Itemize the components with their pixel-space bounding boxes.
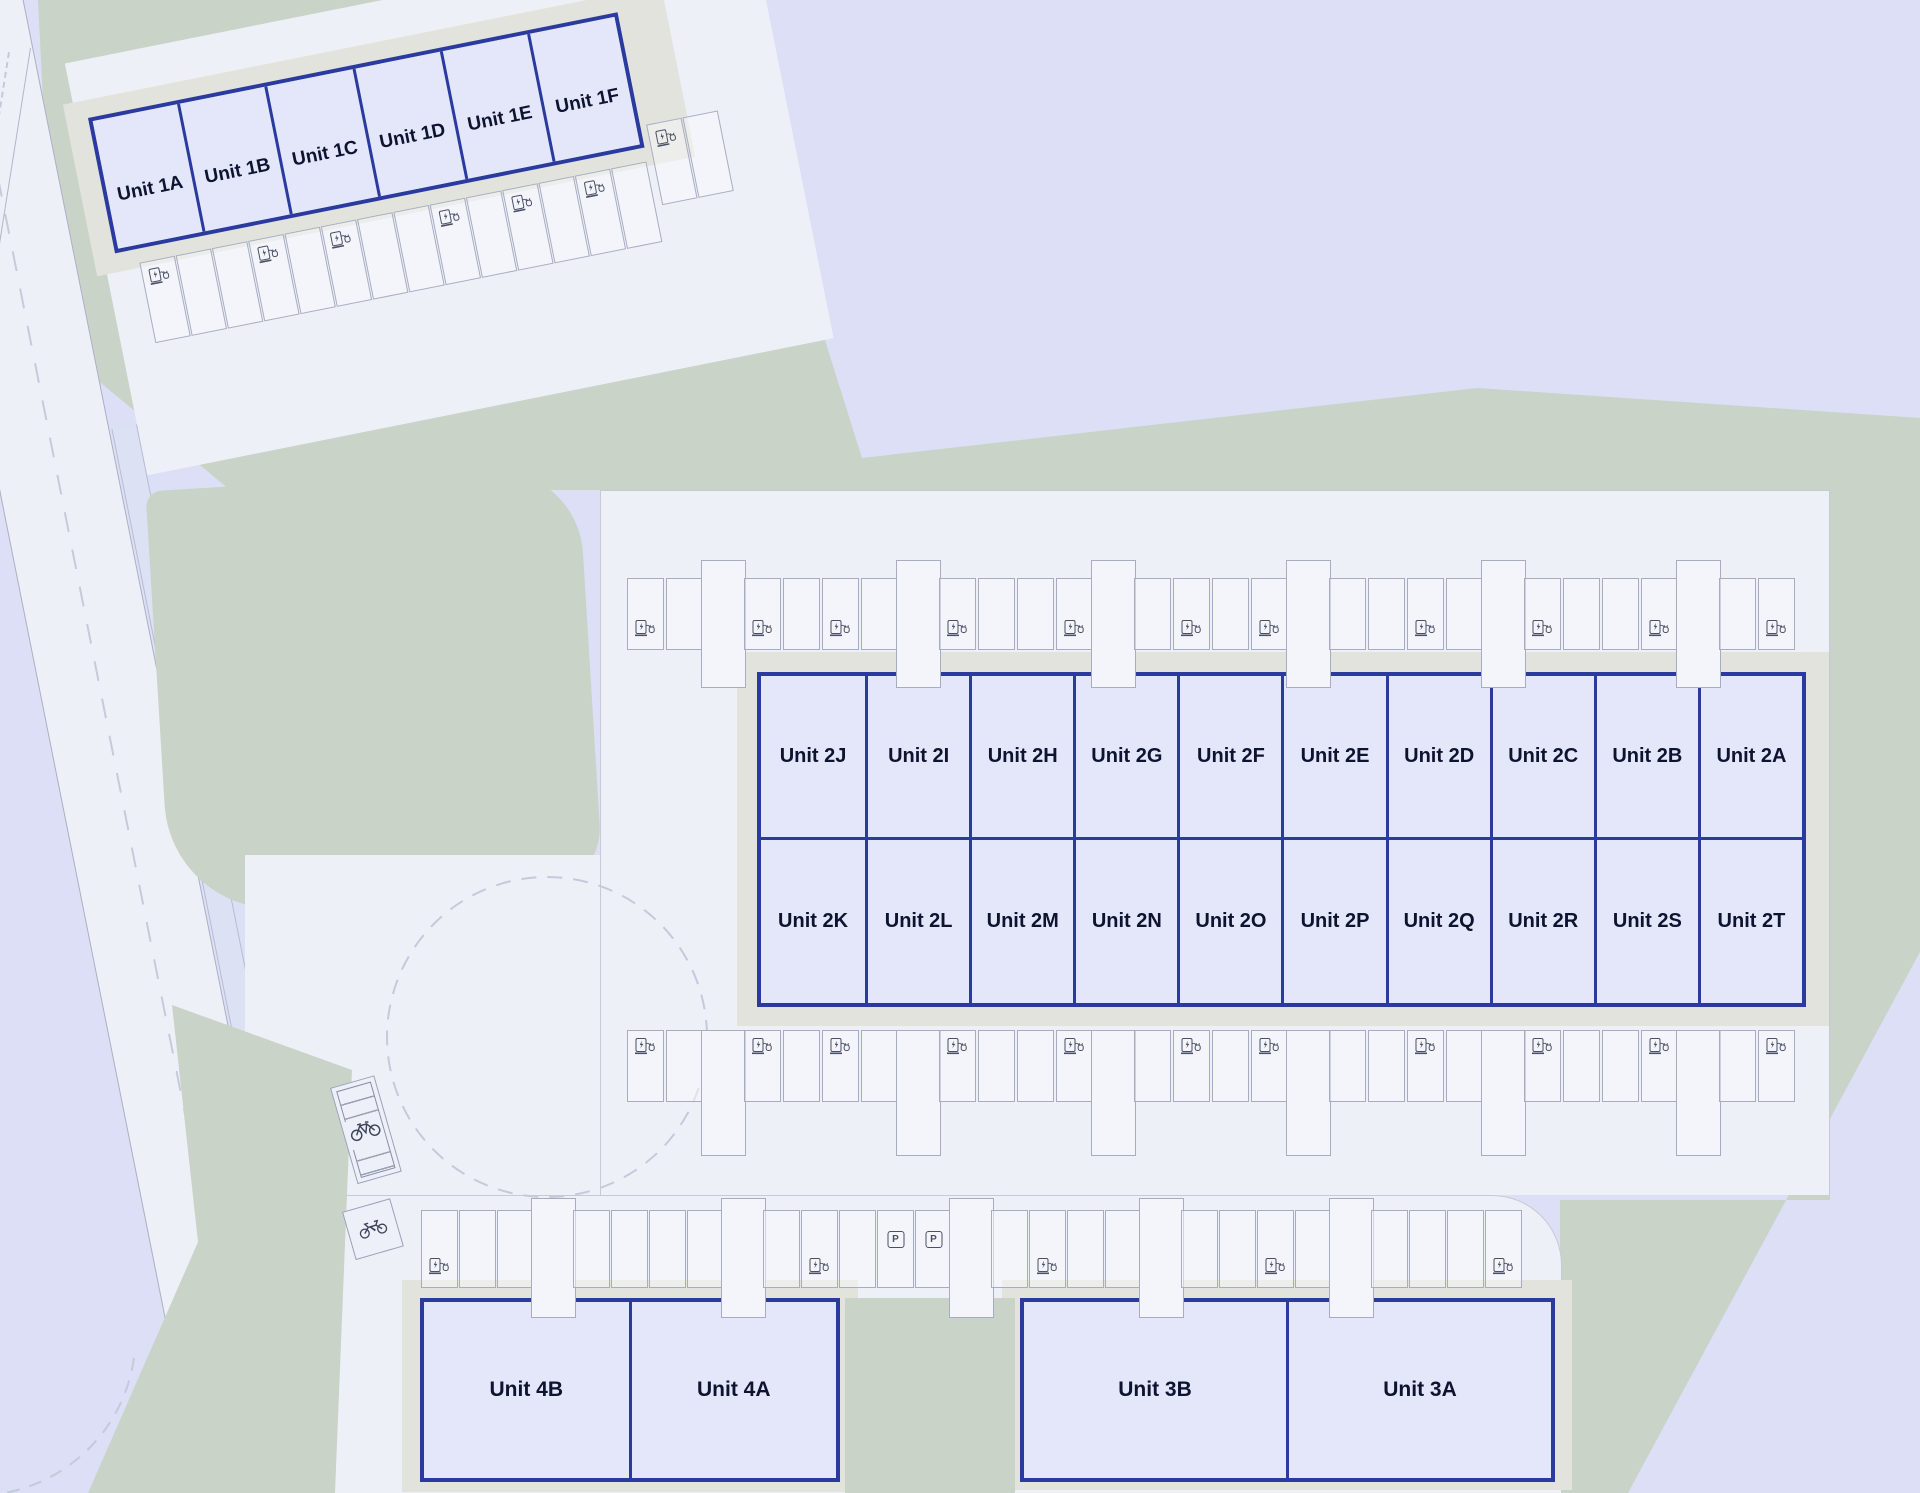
ev-charging-icon <box>829 1037 853 1061</box>
ev-charging-icon <box>1765 619 1789 643</box>
ev-charging-icon <box>808 1257 832 1281</box>
unit-label: Unit 4B <box>490 1378 564 1402</box>
motorcycle-icon <box>355 1213 389 1240</box>
ev-charging-icon <box>634 619 658 643</box>
ev-charging-station-icon <box>1180 1037 1204 1056</box>
ev-charging-station-icon <box>1414 1037 1438 1056</box>
building-block2: Unit 2JUnit 2IUnit 2HUnit 2GUnit 2FUnit … <box>757 672 1806 1007</box>
ev-charging-station-icon <box>1063 619 1087 638</box>
parking-stall <box>1409 1210 1446 1288</box>
parking-stall <box>822 578 859 650</box>
ev-charging-station-icon <box>328 227 355 250</box>
parking-stall-wide <box>1091 1030 1136 1156</box>
unit-label: Unit 2I <box>888 745 949 768</box>
building-block4: Unit 4B Unit 4A <box>420 1298 840 1482</box>
ev-charging-station-icon <box>829 619 853 638</box>
ev-charging-icon <box>1063 1037 1087 1061</box>
grass-central-verge <box>145 465 603 915</box>
ev-charging-station-icon <box>437 206 464 229</box>
parking-stall-wide <box>1676 1030 1721 1156</box>
parking-stall <box>1067 1210 1104 1288</box>
unit-2j: Unit 2J <box>761 676 865 840</box>
parking-stall <box>666 578 703 650</box>
parking-stall <box>421 1210 458 1288</box>
unit-label: Unit 2J <box>780 745 847 768</box>
ev-charging-icon <box>1531 619 1555 643</box>
ev-charging-icon <box>1765 1037 1789 1061</box>
parking-stall <box>1719 578 1756 650</box>
unit-label: Unit 1C <box>290 137 360 172</box>
parking-stall <box>627 578 664 650</box>
ev-charging-station-icon <box>808 1257 832 1276</box>
parking-p-icon: P <box>887 1231 904 1248</box>
unit-2f: Unit 2F <box>1177 676 1281 840</box>
ev-charging-icon <box>751 619 775 643</box>
parking-stall <box>1447 1210 1484 1288</box>
unit-label: Unit 2S <box>1613 910 1682 933</box>
parking-stall <box>1371 1210 1408 1288</box>
ev-charging-station-icon <box>255 242 282 265</box>
ev-charging-station-icon <box>1531 619 1555 638</box>
parking-stall <box>783 578 820 650</box>
ev-charging-icon <box>1648 619 1672 643</box>
parking-stall <box>1212 578 1249 650</box>
ev-charging-icon <box>1180 619 1204 643</box>
unit-label: Unit 2T <box>1718 910 1786 933</box>
parking-stall <box>744 578 781 650</box>
parking-stall-wide <box>1329 1198 1374 1318</box>
parking-stall <box>1173 578 1210 650</box>
building-block3: Unit 3B Unit 3A <box>1020 1298 1555 1482</box>
ev-charging-station-icon <box>1492 1257 1516 1276</box>
parking-stall <box>978 1030 1015 1102</box>
unit-label: Unit 2G <box>1091 745 1162 768</box>
ev-charging-icon <box>1414 1037 1438 1061</box>
unit-label: Unit 4A <box>697 1378 771 1402</box>
parking-stall <box>744 1030 781 1102</box>
unit-3a: Unit 3A <box>1286 1302 1551 1478</box>
unit-label: Unit 2F <box>1197 745 1265 768</box>
unit-2n: Unit 2N <box>1073 840 1177 1004</box>
ev-charging-icon <box>829 619 853 643</box>
unit-2b: Unit 2B <box>1594 676 1698 840</box>
unit-label: Unit 2L <box>885 910 953 933</box>
parking-stall <box>1563 1030 1600 1102</box>
parking-stall <box>1524 578 1561 650</box>
ev-charging-station-icon <box>634 619 658 638</box>
parking-stall <box>1329 578 1366 650</box>
unit-label: Unit 2P <box>1301 910 1370 933</box>
ev-charging-station-icon <box>1765 1037 1789 1056</box>
grass-between-block3-block4 <box>845 1298 1015 1493</box>
parking-stall <box>1251 1030 1288 1102</box>
ev-charging-icon <box>437 206 465 234</box>
ev-charging-icon <box>1648 1037 1672 1061</box>
parking-stall: P <box>915 1210 952 1288</box>
ev-charging-icon <box>1180 1037 1204 1061</box>
ev-charging-station-icon <box>751 1037 775 1056</box>
parking-stall <box>1446 578 1483 650</box>
ev-charging-icon <box>634 1037 658 1061</box>
site-plan-canvas: Unit 1AUnit 1BUnit 1CUnit 1DUnit 1EUnit … <box>0 0 1920 1493</box>
ev-charging-icon <box>582 177 610 205</box>
parking-stall <box>1056 578 1093 650</box>
ev-charging-station-icon <box>751 619 775 638</box>
parking-stall <box>1758 1030 1795 1102</box>
unit-2p: Unit 2P <box>1281 840 1385 1004</box>
unit-label: Unit 2O <box>1195 910 1266 933</box>
ev-charging-icon <box>1258 1037 1282 1061</box>
ev-charging-station-icon <box>1258 619 1282 638</box>
parking-stall <box>611 1210 648 1288</box>
parking-stall <box>1017 1030 1054 1102</box>
ev-charging-station-icon <box>582 177 609 200</box>
ev-charging-station-icon <box>1180 619 1204 638</box>
unit-2h: Unit 2H <box>969 676 1073 840</box>
parking-stall <box>783 1030 820 1102</box>
ev-charging-station-icon <box>1531 1037 1555 1056</box>
parking-stall-wide <box>531 1198 576 1318</box>
unit-2a: Unit 2A <box>1698 676 1802 840</box>
unit-label: Unit 2D <box>1404 745 1474 768</box>
parking-stall <box>1758 578 1795 650</box>
parking-stall <box>1407 578 1444 650</box>
ev-charging-icon <box>147 264 175 292</box>
parking-stall-wide <box>701 560 746 688</box>
parking-stall <box>1719 1030 1756 1102</box>
unit-label: Unit 1A <box>115 172 185 207</box>
parking-stall <box>1641 1030 1678 1102</box>
parking-stall <box>497 1210 534 1288</box>
unit-2t: Unit 2T <box>1698 840 1802 1004</box>
parking-stall <box>1407 1030 1444 1102</box>
ev-charging-station-icon <box>946 1037 970 1056</box>
parking-stall-wide <box>896 560 941 688</box>
parking-stall-wide <box>1481 1030 1526 1156</box>
parking-stall <box>1173 1030 1210 1102</box>
parking-stall <box>1134 578 1171 650</box>
unit-2k: Unit 2K <box>761 840 865 1004</box>
unit-2r: Unit 2R <box>1490 840 1594 1004</box>
unit-label: Unit 2H <box>988 745 1058 768</box>
unit-label: Unit 2K <box>778 910 848 933</box>
ev-charging-station-icon <box>1765 619 1789 638</box>
unit-3b: Unit 3B <box>1024 1302 1286 1478</box>
unit-label: Unit 2E <box>1301 745 1370 768</box>
unit-2s: Unit 2S <box>1594 840 1698 1004</box>
ev-charging-station-icon <box>1648 619 1672 638</box>
parking-stall <box>459 1210 496 1288</box>
parking-stall-wide <box>896 1030 941 1156</box>
parking-stall-wide <box>1091 560 1136 688</box>
parking-stall-wide <box>1676 560 1721 688</box>
unit-label: Unit 1E <box>466 102 534 136</box>
ev-charging-icon <box>1036 1257 1060 1281</box>
parking-stall <box>1181 1210 1218 1288</box>
unit-label: Unit 2B <box>1612 745 1682 768</box>
unit-label: Unit 3A <box>1383 1378 1457 1402</box>
parking-stall <box>1368 1030 1405 1102</box>
unit-label: Unit 2C <box>1508 745 1578 768</box>
parking-stall <box>1485 1210 1522 1288</box>
unit-label: Unit 2M <box>987 910 1059 933</box>
ev-charging-icon <box>946 1037 970 1061</box>
parking-stall <box>649 1210 686 1288</box>
ev-charging-station-icon <box>1264 1257 1288 1276</box>
parking-stall-wide <box>701 1030 746 1156</box>
parking-stall-wide <box>721 1198 766 1318</box>
ev-charging-icon <box>328 227 356 255</box>
parking-p-icon: P <box>925 1231 942 1248</box>
ev-charging-icon <box>653 126 681 154</box>
parking-stall <box>1251 578 1288 650</box>
unit-2c: Unit 2C <box>1490 676 1594 840</box>
ev-charging-station-icon <box>1063 1037 1087 1056</box>
ev-charging-station-icon <box>653 126 680 149</box>
parking-stall-wide <box>1481 560 1526 688</box>
ev-charging-icon <box>1492 1257 1516 1281</box>
ev-charging-icon <box>1258 619 1282 643</box>
parking-stall <box>627 1030 664 1102</box>
ev-charging-icon <box>1063 619 1087 643</box>
unit-label: Unit 1F <box>554 85 621 119</box>
unit-4b: Unit 4B <box>424 1302 629 1478</box>
unit-2d: Unit 2D <box>1386 676 1490 840</box>
ev-charging-station-icon <box>829 1037 853 1056</box>
parking-stall <box>763 1210 800 1288</box>
ev-charging-station-icon <box>1036 1257 1060 1276</box>
ev-charging-station-icon <box>428 1257 452 1276</box>
unit-label: Unit 1D <box>378 119 448 154</box>
ev-charging-icon <box>509 191 537 219</box>
parking-stall <box>1641 578 1678 650</box>
parking-stall <box>1368 578 1405 650</box>
parking-stall <box>1524 1030 1561 1102</box>
parking-stall <box>1212 1030 1249 1102</box>
parking-stall <box>1029 1210 1066 1288</box>
ev-charging-icon <box>751 1037 775 1061</box>
unit-label: Unit 2R <box>1508 910 1578 933</box>
unit-2q: Unit 2Q <box>1386 840 1490 1004</box>
ev-charging-station-icon <box>1414 619 1438 638</box>
parking-stall-wide <box>1286 1030 1331 1156</box>
parking-stall <box>861 1030 898 1102</box>
ev-charging-icon <box>1264 1257 1288 1281</box>
unit-label: Unit 2A <box>1716 745 1786 768</box>
parking-stall <box>1602 578 1639 650</box>
parking-stall <box>1257 1210 1294 1288</box>
ev-charging-station-icon <box>634 1037 658 1056</box>
parking-stall <box>687 1210 724 1288</box>
ev-charging-icon <box>428 1257 452 1281</box>
parking-stall <box>1219 1210 1256 1288</box>
parking-stall <box>573 1210 610 1288</box>
parking-stall <box>1446 1030 1483 1102</box>
unit-2g: Unit 2G <box>1073 676 1177 840</box>
ev-charging-icon <box>1531 1037 1555 1061</box>
ev-charging-station-icon <box>946 619 970 638</box>
parking-stall <box>1602 1030 1639 1102</box>
ev-charging-station-icon <box>1258 1037 1282 1056</box>
unit-2m: Unit 2M <box>969 840 1073 1004</box>
ev-charging-icon <box>1414 619 1438 643</box>
unit-label: Unit 1B <box>203 154 273 189</box>
ev-charging-station-icon <box>147 264 174 287</box>
parking-stall <box>1295 1210 1332 1288</box>
parking-stall <box>822 1030 859 1102</box>
parking-stall <box>1056 1030 1093 1102</box>
parking-stall <box>991 1210 1028 1288</box>
unit-2o: Unit 2O <box>1177 840 1281 1004</box>
parking-stall: P <box>877 1210 914 1288</box>
parking-stall-wide <box>1286 560 1331 688</box>
parking-stall <box>666 1030 703 1102</box>
parking-stall <box>801 1210 838 1288</box>
parking-stall <box>939 1030 976 1102</box>
unit-label: Unit 2N <box>1092 910 1162 933</box>
ev-charging-icon <box>255 242 283 270</box>
parking-stall <box>1017 578 1054 650</box>
unit-label: Unit 2Q <box>1404 910 1475 933</box>
parking-stall-wide <box>1139 1198 1184 1318</box>
unit-4a: Unit 4A <box>629 1302 837 1478</box>
parking-stall-wide <box>949 1198 994 1318</box>
unit-2i: Unit 2I <box>865 676 969 840</box>
parking-stall <box>1134 1030 1171 1102</box>
ev-charging-station-icon <box>1648 1037 1672 1056</box>
ev-charging-icon <box>946 619 970 643</box>
parking-stall <box>861 578 898 650</box>
motorcycle-icon <box>355 1213 391 1245</box>
unit-2l: Unit 2L <box>865 840 969 1004</box>
parking-stall <box>1329 1030 1366 1102</box>
ev-charging-station-icon <box>509 191 536 214</box>
unit-label: Unit 3B <box>1118 1378 1192 1402</box>
parking-stall <box>839 1210 876 1288</box>
parking-stall <box>939 578 976 650</box>
unit-2e: Unit 2E <box>1281 676 1385 840</box>
parking-stall <box>1105 1210 1142 1288</box>
road-junction-dashed-curve <box>0 1352 142 1493</box>
parking-stall <box>978 578 1015 650</box>
parking-stall <box>1563 578 1600 650</box>
